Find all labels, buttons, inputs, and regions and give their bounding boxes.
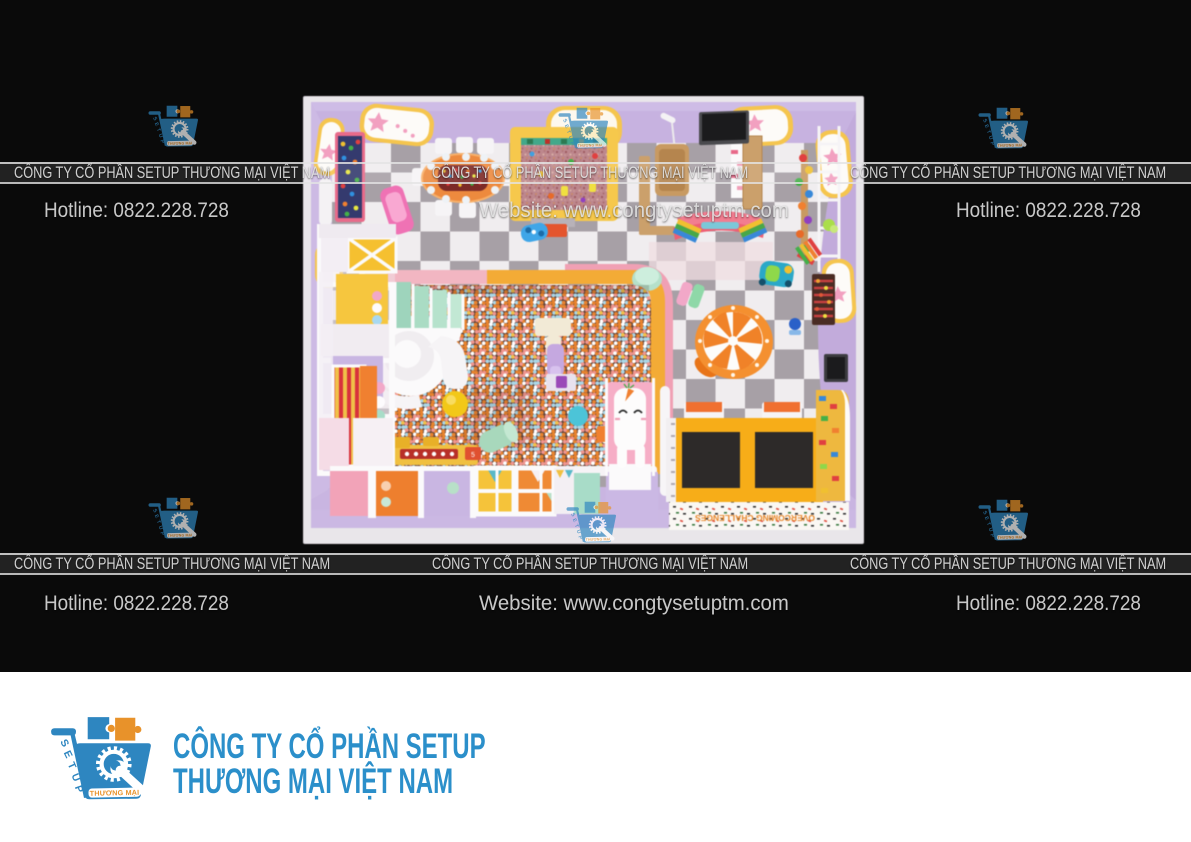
svg-text:OVERCOMING CHALLENGES: OVERCOMING CHALLENGES — [695, 513, 815, 523]
svg-text:5: 5 — [471, 452, 475, 459]
